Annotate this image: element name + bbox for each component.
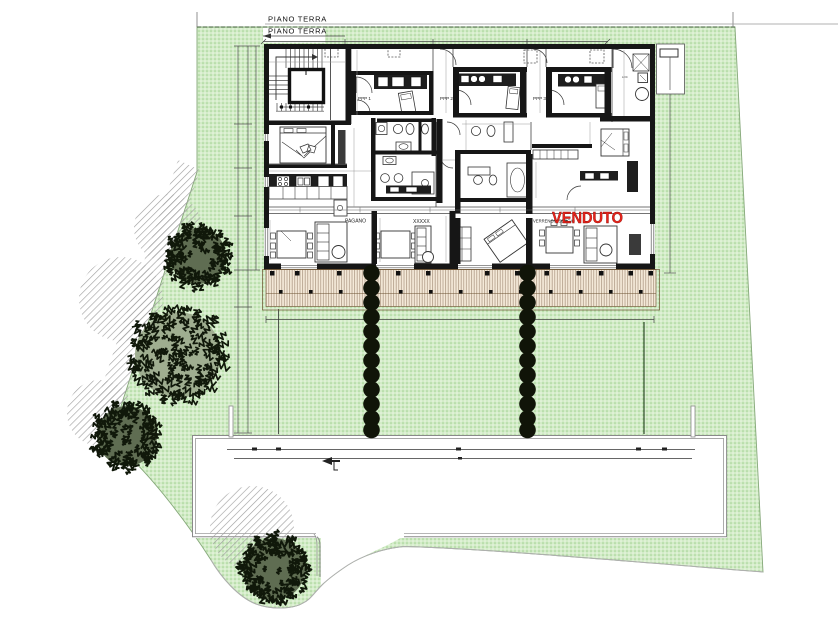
svg-text:PIANO TERRA: PIANO TERRA — [268, 15, 327, 24]
svg-text:PAGANO: PAGANO — [345, 219, 366, 225]
svg-text:XXXXX: XXXXX — [413, 219, 430, 225]
svg-text:PIANO TERRA: PIANO TERRA — [268, 27, 327, 36]
svg-text:PPP 1: PPP 1 — [358, 96, 371, 101]
svg-text:PPP 2: PPP 2 — [440, 96, 453, 101]
svg-text:VENDUTO: VENDUTO — [552, 210, 623, 227]
svg-text:LOC: LOC — [622, 75, 628, 79]
svg-text:PPP 3: PPP 3 — [533, 96, 546, 101]
